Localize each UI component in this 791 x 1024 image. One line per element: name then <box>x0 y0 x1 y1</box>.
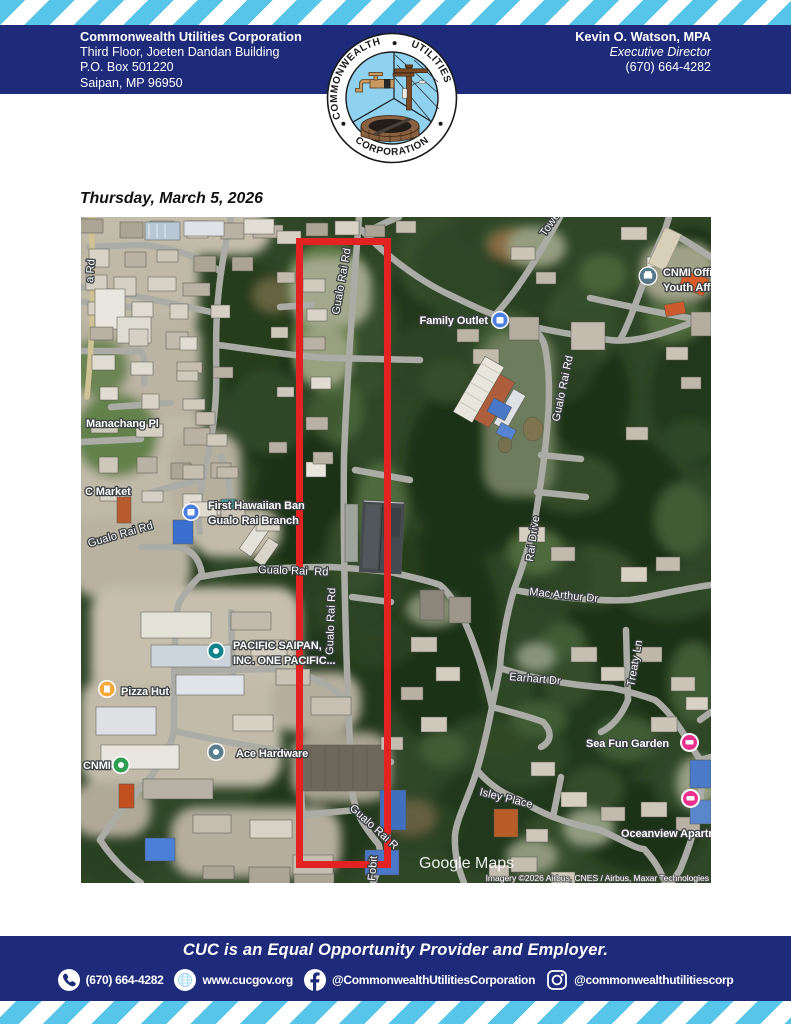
svg-text:Family Outlet: Family Outlet <box>420 315 489 327</box>
svg-text:Imagery ©2026 Airbus, CNES / A: Imagery ©2026 Airbus, CNES / Airbus, Max… <box>486 873 709 883</box>
svg-text:Gualo Rai Branch: Gualo Rai Branch <box>208 515 299 527</box>
svg-text:Fobit: Fobit <box>366 855 380 881</box>
svg-text:Gualo Rai Rd: Gualo Rai Rd <box>258 564 329 578</box>
svg-text:Pizza Hut: Pizza Hut <box>121 686 169 698</box>
svg-text:PACIFIC SAIPAN,: PACIFIC SAIPAN, <box>233 640 322 652</box>
svg-text:Ace Hardware: Ace Hardware <box>236 748 308 760</box>
svg-text:Manachang Pl: Manachang Pl <box>86 418 159 430</box>
svg-text:Google Maps: Google Maps <box>419 855 514 872</box>
svg-text:Gualo Rai Rd: Gualo Rai Rd <box>324 587 338 655</box>
svg-text:C Market: C Market <box>85 486 131 498</box>
svg-text:Sea Fun Garden: Sea Fun Garden <box>586 738 669 750</box>
svg-text:CNMI Offi: CNMI Offi <box>663 267 711 279</box>
svg-text:INC. ONE PACIFIC...: INC. ONE PACIFIC... <box>233 655 335 667</box>
svg-text:CNMI: CNMI <box>83 760 111 772</box>
svg-text:Oceanview Apartm: Oceanview Apartm <box>621 828 711 840</box>
svg-text:First Hawaiian Ban: First Hawaiian Ban <box>208 500 305 512</box>
svg-text:Youth Affa: Youth Affa <box>663 282 711 294</box>
svg-text:a Rd: a Rd <box>84 259 98 283</box>
